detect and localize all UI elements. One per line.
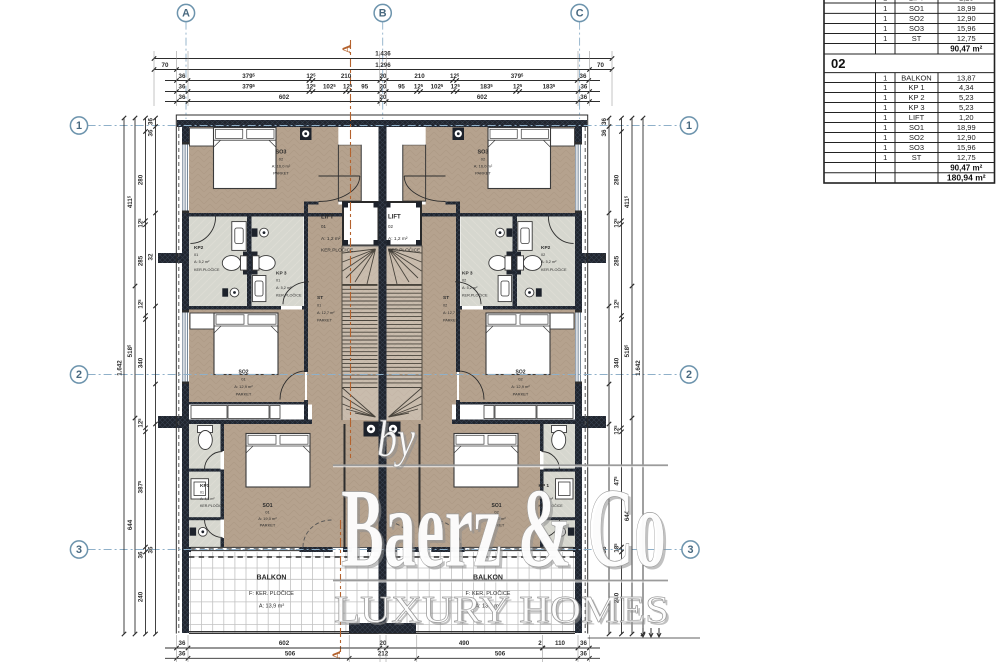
svg-text:02: 02 xyxy=(541,253,545,257)
svg-text:SO3: SO3 xyxy=(275,150,286,156)
svg-text:A: 13,9 m²: A: 13,9 m² xyxy=(259,604,285,610)
svg-text:1: 1 xyxy=(883,103,887,112)
svg-text:01: 01 xyxy=(321,224,327,229)
svg-text:A: 1,2 m²: A: 1,2 m² xyxy=(388,236,408,242)
svg-text:KER.PLOČICE: KER.PLOČICE xyxy=(200,503,225,508)
svg-text:36: 36 xyxy=(580,84,587,91)
svg-text:36: 36 xyxy=(580,640,587,647)
svg-text:SO1: SO1 xyxy=(262,503,272,509)
svg-text:285: 285 xyxy=(614,255,621,266)
svg-text:36: 36 xyxy=(148,118,155,125)
svg-text:3: 3 xyxy=(687,544,693,556)
svg-text:SO3: SO3 xyxy=(909,24,924,33)
svg-text:SO1: SO1 xyxy=(909,4,924,13)
svg-text:2: 2 xyxy=(686,369,692,381)
svg-text:1: 1 xyxy=(883,4,887,13)
svg-text:C: C xyxy=(576,8,584,20)
svg-text:ST: ST xyxy=(317,295,323,301)
svg-text:18,99: 18,99 xyxy=(957,4,976,13)
svg-text:LUXURY HOMES: LUXURY HOMES xyxy=(334,589,669,631)
svg-text:212: 212 xyxy=(378,651,389,658)
svg-text:KER.PLOČICE: KER.PLOČICE xyxy=(194,267,220,272)
svg-text:A: 12,7 m²: A: 12,7 m² xyxy=(443,311,461,315)
svg-text:1,20: 1,20 xyxy=(959,113,974,122)
svg-text:36: 36 xyxy=(179,640,186,647)
svg-text:506: 506 xyxy=(285,651,296,658)
svg-text:13,87: 13,87 xyxy=(957,73,976,82)
svg-text:32: 32 xyxy=(601,253,608,260)
svg-text:LIFT: LIFT xyxy=(909,0,925,3)
svg-text:506: 506 xyxy=(495,651,506,658)
svg-text:1: 1 xyxy=(883,143,887,152)
svg-text:1.296: 1.296 xyxy=(375,62,391,69)
svg-text:95: 95 xyxy=(361,84,368,91)
svg-text:36: 36 xyxy=(580,94,587,101)
svg-text:02: 02 xyxy=(462,279,466,283)
svg-text:01: 01 xyxy=(317,304,321,308)
svg-text:70: 70 xyxy=(162,62,169,69)
svg-text:36: 36 xyxy=(580,651,587,658)
svg-text:SO1: SO1 xyxy=(909,123,924,132)
svg-text:36: 36 xyxy=(601,118,608,125)
svg-text:BALKON: BALKON xyxy=(257,575,287,582)
svg-text:PARKET: PARKET xyxy=(260,523,276,528)
svg-text:KER.PLOČICE: KER.PLOČICE xyxy=(388,247,420,254)
svg-text:A: 5,2 m²: A: 5,2 m² xyxy=(194,260,210,264)
svg-text:PARKET: PARKET xyxy=(475,171,491,176)
svg-text:01: 01 xyxy=(276,279,280,283)
svg-text:210: 210 xyxy=(341,73,352,80)
svg-text:2: 2 xyxy=(76,369,82,381)
svg-text:KP 2: KP 2 xyxy=(908,93,924,102)
svg-text:PARKET: PARKET xyxy=(443,319,459,323)
svg-text:ST: ST xyxy=(912,153,922,162)
svg-text:A: 12,7 m²: A: 12,7 m² xyxy=(317,311,335,315)
svg-text:by: by xyxy=(377,411,416,468)
svg-text:1: 1 xyxy=(883,14,887,23)
svg-text:02: 02 xyxy=(518,377,523,382)
svg-text:KP2: KP2 xyxy=(194,245,204,251)
svg-text:02: 02 xyxy=(443,304,447,308)
svg-text:A: 19,0 m²: A: 19,0 m² xyxy=(258,516,277,521)
svg-text:95: 95 xyxy=(398,84,405,91)
svg-text:20: 20 xyxy=(380,73,387,80)
svg-text:PARKET: PARKET xyxy=(513,392,529,397)
svg-text:18,99: 18,99 xyxy=(957,123,976,132)
svg-text:LIFT: LIFT xyxy=(388,215,401,221)
svg-text:1: 1 xyxy=(883,0,887,3)
svg-text:32: 32 xyxy=(148,253,155,260)
svg-text:PARKET: PARKET xyxy=(317,319,333,323)
svg-text:70: 70 xyxy=(597,62,604,69)
svg-text:1.436: 1.436 xyxy=(375,51,391,58)
svg-text:12,90: 12,90 xyxy=(957,133,976,142)
svg-text:1: 1 xyxy=(883,113,887,122)
svg-text:1: 1 xyxy=(883,73,887,82)
svg-text:LIFT: LIFT xyxy=(909,113,925,122)
svg-text:20: 20 xyxy=(380,94,387,101)
svg-text:ST: ST xyxy=(443,295,449,301)
svg-text:02: 02 xyxy=(831,56,845,71)
svg-text:2: 2 xyxy=(538,640,542,647)
svg-text:36: 36 xyxy=(148,546,155,553)
svg-text:602: 602 xyxy=(279,94,290,101)
svg-text:02: 02 xyxy=(279,157,284,162)
svg-text:1.642: 1.642 xyxy=(117,360,124,376)
svg-text:A: 16,0 m²: A: 16,0 m² xyxy=(272,164,291,169)
svg-text:36: 36 xyxy=(179,651,186,658)
svg-text:110: 110 xyxy=(555,640,566,647)
svg-text:5,23: 5,23 xyxy=(959,93,974,102)
svg-text:1: 1 xyxy=(76,120,82,132)
svg-text:210: 210 xyxy=(414,73,425,80)
svg-text:SO3: SO3 xyxy=(477,150,488,156)
svg-text:15,96: 15,96 xyxy=(957,24,976,33)
svg-text:36: 36 xyxy=(179,73,186,80)
svg-text:BALKON: BALKON xyxy=(901,73,931,82)
svg-text:36: 36 xyxy=(601,129,608,136)
svg-text:A: 5,2 m²: A: 5,2 m² xyxy=(276,286,292,290)
svg-text:602: 602 xyxy=(477,94,488,101)
svg-text:340: 340 xyxy=(614,357,621,368)
svg-text:A: 5,2 m²: A: 5,2 m² xyxy=(541,260,557,264)
svg-text:12,75: 12,75 xyxy=(957,153,976,162)
svg-text:1: 1 xyxy=(686,120,692,132)
svg-text:180,94 m²: 180,94 m² xyxy=(947,173,986,183)
svg-text:12,75: 12,75 xyxy=(957,34,976,43)
svg-text:1: 1 xyxy=(883,34,887,43)
svg-text:KP2: KP2 xyxy=(541,245,551,251)
svg-text:36: 36 xyxy=(179,84,186,91)
svg-text:280: 280 xyxy=(138,174,145,185)
svg-text:3: 3 xyxy=(76,544,82,556)
svg-text:15,96: 15,96 xyxy=(957,143,976,152)
svg-text:1: 1 xyxy=(883,83,887,92)
svg-text:602: 602 xyxy=(279,640,290,647)
svg-text:SO2: SO2 xyxy=(909,14,924,23)
svg-text:ST: ST xyxy=(912,34,922,43)
svg-text:KP 3: KP 3 xyxy=(276,271,287,277)
svg-text:285: 285 xyxy=(138,255,145,266)
svg-text:KER.PLOČICE: KER.PLOČICE xyxy=(321,247,353,254)
svg-text:90,47 m²: 90,47 m² xyxy=(950,163,982,172)
svg-text:1: 1 xyxy=(883,153,887,162)
svg-text:A: 5,2 m²: A: 5,2 m² xyxy=(462,286,478,290)
svg-text:644: 644 xyxy=(127,519,134,530)
svg-text:36: 36 xyxy=(148,129,155,136)
svg-text:1: 1 xyxy=(883,24,887,33)
svg-text:1: 1 xyxy=(883,123,887,132)
svg-text:02: 02 xyxy=(388,224,394,229)
svg-text:PARKET: PARKET xyxy=(236,392,252,397)
svg-text:02: 02 xyxy=(481,157,486,162)
svg-text:340: 340 xyxy=(138,357,145,368)
svg-text:36: 36 xyxy=(580,73,587,80)
svg-text:KP 1: KP 1 xyxy=(908,83,924,92)
svg-text:A: A xyxy=(182,8,190,20)
svg-text:F: KER. PLOČICE: F: KER. PLOČICE xyxy=(249,590,294,597)
svg-text:A: 1,2 m²: A: 1,2 m² xyxy=(321,236,341,242)
svg-text:A: A xyxy=(339,44,353,53)
svg-text:36: 36 xyxy=(179,94,186,101)
svg-text:KER.PLOČICE: KER.PLOČICE xyxy=(276,293,302,298)
svg-text:36: 36 xyxy=(138,551,145,558)
svg-text:A: 12,9 m²: A: 12,9 m² xyxy=(511,384,530,389)
svg-text:490: 490 xyxy=(459,640,470,647)
svg-text:B: B xyxy=(379,8,387,20)
svg-text:4,34: 4,34 xyxy=(959,83,974,92)
svg-text:A: 16,0 m²: A: 16,0 m² xyxy=(474,164,493,169)
svg-text:01: 01 xyxy=(265,510,270,515)
svg-text:240: 240 xyxy=(138,591,145,602)
svg-text:SO2: SO2 xyxy=(909,133,924,142)
svg-text:SO3: SO3 xyxy=(909,143,924,152)
svg-text:1,20: 1,20 xyxy=(959,0,974,3)
svg-text:280: 280 xyxy=(614,174,621,185)
svg-text:12,90: 12,90 xyxy=(957,14,976,23)
svg-text:20: 20 xyxy=(380,84,387,91)
svg-text:KP 3: KP 3 xyxy=(908,103,924,112)
svg-text:LIFT: LIFT xyxy=(321,215,334,221)
svg-text:KP1: KP1 xyxy=(200,483,210,489)
svg-text:5,23: 5,23 xyxy=(959,103,974,112)
svg-text:KER.PLOČICE: KER.PLOČICE xyxy=(541,267,567,272)
svg-text:KP 3: KP 3 xyxy=(462,271,473,277)
svg-text:90,47 m²: 90,47 m² xyxy=(950,44,982,53)
svg-text:1.642: 1.642 xyxy=(635,360,642,376)
svg-text:Baerz & Co: Baerz & Co xyxy=(341,466,666,591)
svg-text:A: 4,3 m²: A: 4,3 m² xyxy=(200,497,215,501)
svg-text:01: 01 xyxy=(241,377,246,382)
svg-text:01: 01 xyxy=(194,253,198,257)
svg-text:1: 1 xyxy=(883,93,887,102)
svg-text:A: 12,9 m²: A: 12,9 m² xyxy=(234,384,253,389)
svg-text:01: 01 xyxy=(200,491,204,495)
svg-text:1: 1 xyxy=(883,133,887,142)
svg-text:PARKET: PARKET xyxy=(273,171,289,176)
svg-text:KER.PLOČICE: KER.PLOČICE xyxy=(462,293,488,298)
